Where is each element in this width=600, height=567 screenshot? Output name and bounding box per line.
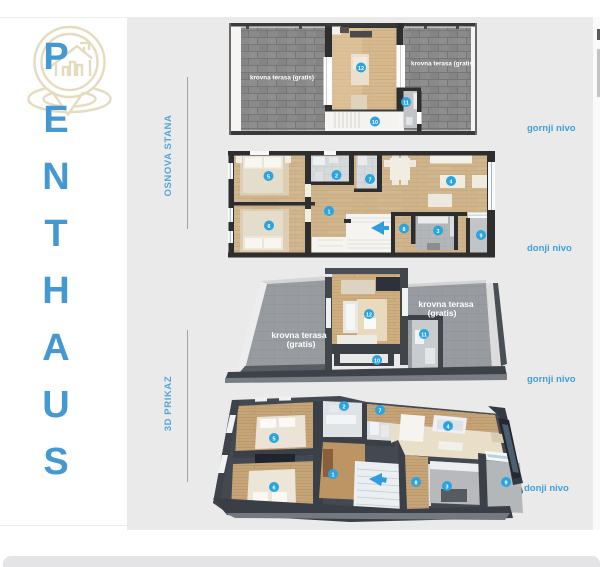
svg-text:1: 1 xyxy=(328,209,331,215)
svg-text:krovna terasa (gratis): krovna terasa (gratis) xyxy=(250,75,314,82)
svg-text:6: 6 xyxy=(273,485,276,491)
svg-text:8: 8 xyxy=(415,480,418,486)
svg-text:(gratis): (gratis) xyxy=(428,308,457,318)
svg-text:krovna terasa (gratis): krovna terasa (gratis) xyxy=(411,61,475,68)
svg-text:11: 11 xyxy=(421,332,427,338)
svg-text:3: 3 xyxy=(437,229,440,235)
svg-text:2: 2 xyxy=(335,173,338,179)
svg-text:8: 8 xyxy=(403,227,406,233)
svg-text:7: 7 xyxy=(369,177,372,183)
svg-text:9: 9 xyxy=(505,480,508,486)
svg-text:7: 7 xyxy=(379,408,382,414)
svg-text:6: 6 xyxy=(268,224,271,230)
svg-text:3: 3 xyxy=(446,484,449,490)
svg-text:5: 5 xyxy=(267,174,270,180)
svg-text:10: 10 xyxy=(372,120,378,126)
svg-text:1: 1 xyxy=(332,472,335,478)
svg-text:4: 4 xyxy=(447,424,450,430)
svg-text:(gratis): (gratis) xyxy=(287,339,316,349)
svg-text:12: 12 xyxy=(358,66,364,72)
svg-text:10: 10 xyxy=(374,358,380,364)
svg-text:5: 5 xyxy=(273,436,276,442)
svg-text:9: 9 xyxy=(480,233,483,239)
svg-text:12: 12 xyxy=(366,312,372,318)
svg-text:2: 2 xyxy=(343,404,346,410)
svg-text:11: 11 xyxy=(403,100,409,106)
svg-text:4: 4 xyxy=(450,179,453,185)
